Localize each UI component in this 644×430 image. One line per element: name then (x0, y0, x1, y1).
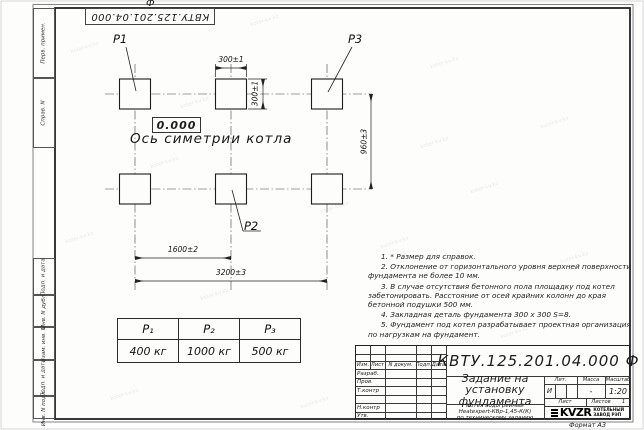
dim-col-spacing: 1600±2 (160, 245, 206, 254)
pad-label-p3: P3 (348, 32, 362, 46)
margin-cell-sprav-n: Справ. N (33, 78, 55, 148)
load-table: P₁ P₂ P₃ 400 кг 1000 кг 500 кг (117, 318, 301, 363)
tb-scale-value: 1:20 (605, 384, 631, 398)
pad-label-p2: P2 (244, 219, 258, 233)
margin-cell-inv-podl: Инв. N подл. (33, 396, 55, 419)
note-5: 5. Фундамент под котел разрабатывает про… (368, 320, 632, 338)
tb-lit-value: И (544, 384, 555, 398)
title-block: Изм. Лист N докум. Подп. Дата Разраб. Пр… (355, 345, 630, 419)
note-3: 3. В случае отсутствия бетонного пола пл… (368, 282, 632, 310)
tb-col-list: Лист (370, 361, 385, 369)
drawing-sheet: Перв. примен. Справ. N Подп. и дата Инв.… (0, 0, 644, 430)
pad-p2 (216, 174, 247, 204)
kvzr-logo-caption: КОТЕЛЬНЫЙ ЗАВОД РЭП (593, 408, 624, 418)
tb-row-utv: Утв. (357, 412, 385, 420)
load-table-header-row: P₁ P₂ P₃ (118, 319, 301, 340)
load-table-value-row: 400 кг 1000 кг 500 кг (118, 340, 301, 363)
margin-label: Инв. N подл. (41, 389, 47, 425)
dim-pad-width: 300±1 (210, 55, 252, 64)
technical-notes: 1. * Размер для справок. 2. Отклонение о… (368, 252, 632, 340)
subtitle-line-3: по техническому заданию (457, 415, 534, 421)
top-document-number-stamp: КВТУ.125.201.04.000 Ф (85, 8, 215, 25)
tb-row-tkontr: Т.контр (357, 386, 385, 395)
load-p1-value: 400 кг (118, 340, 179, 363)
dim-pad-height: 300±1 (251, 77, 260, 111)
load-table-header-p1: P₁ (118, 319, 179, 340)
tb-row-prov: Пров. (357, 378, 385, 386)
margin-label: Перв. примен. (41, 22, 47, 63)
kvzr-logo-text: KVZR (560, 406, 591, 419)
pad-top-middle (216, 79, 247, 109)
format-label: Формат А3 (545, 421, 630, 429)
pad-bottom-left (120, 174, 151, 204)
margin-cell-vzam-inv: Взам. инв. N (33, 327, 55, 360)
dim-row-spacing: 960±3 (360, 124, 369, 160)
margin-cell-inv-dubl: Инв. N дубл. (33, 295, 55, 327)
load-p2-value: 1000 кг (179, 340, 240, 363)
tb-sheets-value: 1 (616, 398, 631, 406)
pad-label-p1: P1 (113, 32, 127, 46)
pad-bottom-right (312, 174, 343, 204)
load-table-header-p3: P₃ (240, 319, 301, 340)
boiler-symmetry-axis-label: Ось симетрии котла (130, 131, 292, 147)
margin-cell-podp-data-1: Подп. и дата (33, 258, 55, 295)
tb-sheets-label: Листов (586, 398, 616, 406)
tb-col-doc: N докум. (385, 361, 416, 369)
pad-p1 (120, 79, 151, 109)
load-p3-value: 500 кг (240, 340, 301, 363)
margin-label: Подп. и дата (41, 258, 47, 295)
margin-label: Взам. инв. N (41, 326, 47, 362)
dim-total-width: 3200±3 (208, 268, 254, 277)
drawing-subtitle: Котел водогрейный Heatexpert-КВр-1,45-К(… (446, 404, 544, 420)
kvzr-logo-icon (551, 409, 558, 417)
margin-label: Справ. N (41, 100, 47, 125)
tb-mass-label: Масса (577, 376, 605, 384)
tb-mass-value: - (577, 384, 605, 398)
margin-cell-perv-primen: Перв. примен. (33, 8, 55, 78)
kvzr-caption-line2: ЗАВОД РЭП (593, 412, 621, 417)
note-2: 2. Отклонение от горизонтального уровня … (368, 262, 632, 280)
note-1: 1. * Размер для справок. (368, 252, 632, 261)
tb-row-nkontr: Н.контр (357, 403, 385, 412)
drawing-title: Задание на установку фундамента (448, 376, 542, 404)
tb-row-razrab: Разраб. (357, 369, 385, 378)
tb-scale-label: Масштаб (605, 376, 631, 384)
note-4: 4. Закладная деталь фундамента 300 х 300… (368, 310, 632, 319)
kvzr-logo: KVZR КОТЕЛЬНЫЙ ЗАВОД РЭП (546, 406, 629, 419)
tb-col-podp: Подп. (416, 361, 431, 369)
load-table-header-p2: P₂ (179, 319, 240, 340)
tb-col-izm: Изм. (356, 361, 370, 369)
tb-lit-label: Лит. (544, 376, 577, 384)
pad-p3 (312, 79, 343, 109)
margin-label: Инв. N дубл. (41, 293, 47, 329)
tb-sheet-label: Лист (544, 398, 586, 406)
